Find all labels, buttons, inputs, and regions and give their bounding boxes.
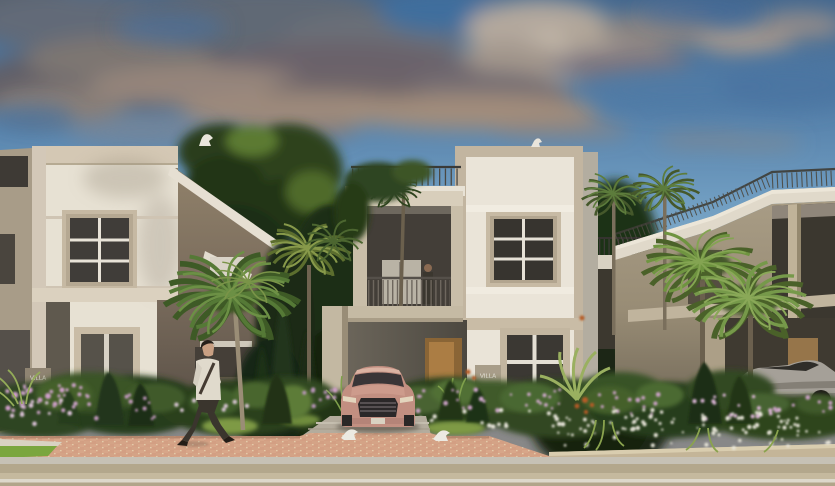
svg-text:VILLA: VILLA: [480, 374, 496, 380]
